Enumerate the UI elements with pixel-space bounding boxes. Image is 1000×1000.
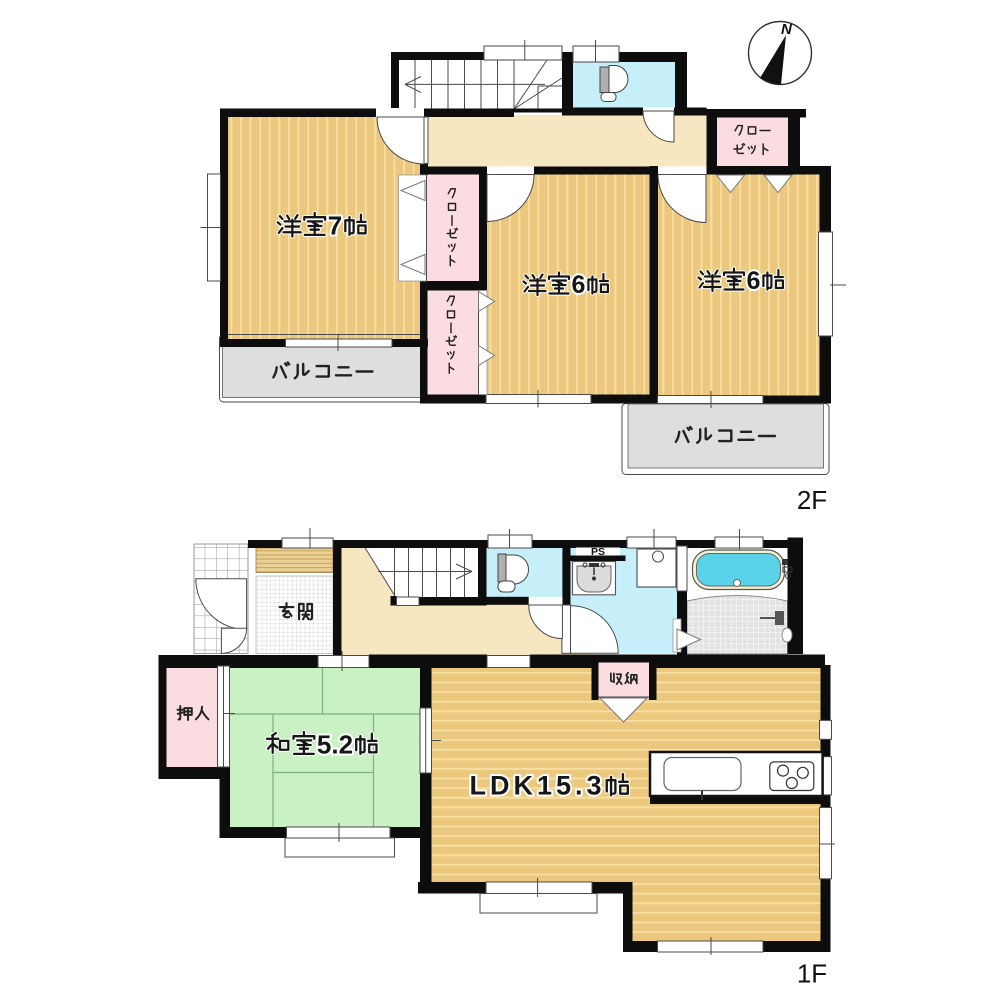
svg-text:N: N <box>781 21 793 38</box>
svg-text:1F: 1F <box>797 959 827 989</box>
svg-text:5.2: 5.2 <box>317 729 353 759</box>
svg-text:7: 7 <box>328 210 342 240</box>
svg-text:2F: 2F <box>797 485 827 515</box>
svg-text:PS: PS <box>591 546 605 558</box>
svg-text:6: 6 <box>747 267 761 295</box>
svg-text:6: 6 <box>572 271 586 299</box>
svg-text:LDK15.3: LDK15.3 <box>470 771 606 801</box>
